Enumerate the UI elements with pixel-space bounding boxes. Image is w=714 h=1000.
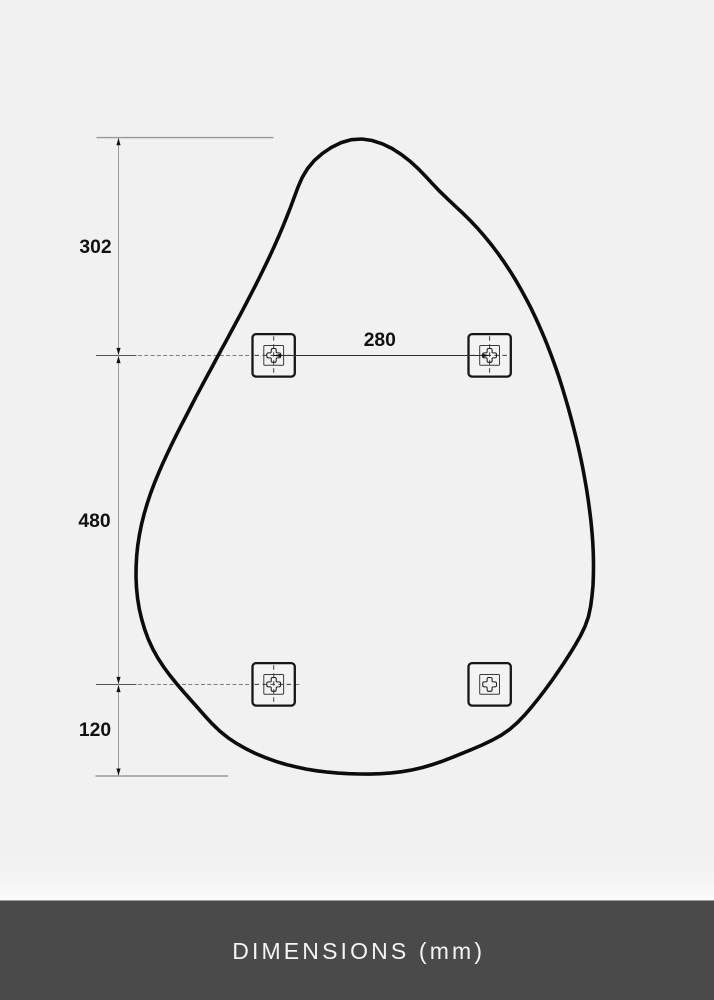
svg-text:120: 120	[79, 720, 111, 741]
svg-text:480: 480	[78, 511, 110, 532]
svg-text:280: 280	[364, 330, 396, 351]
svg-text:DIMENSIONS (mm): DIMENSIONS (mm)	[232, 938, 485, 964]
svg-text:302: 302	[79, 237, 111, 258]
